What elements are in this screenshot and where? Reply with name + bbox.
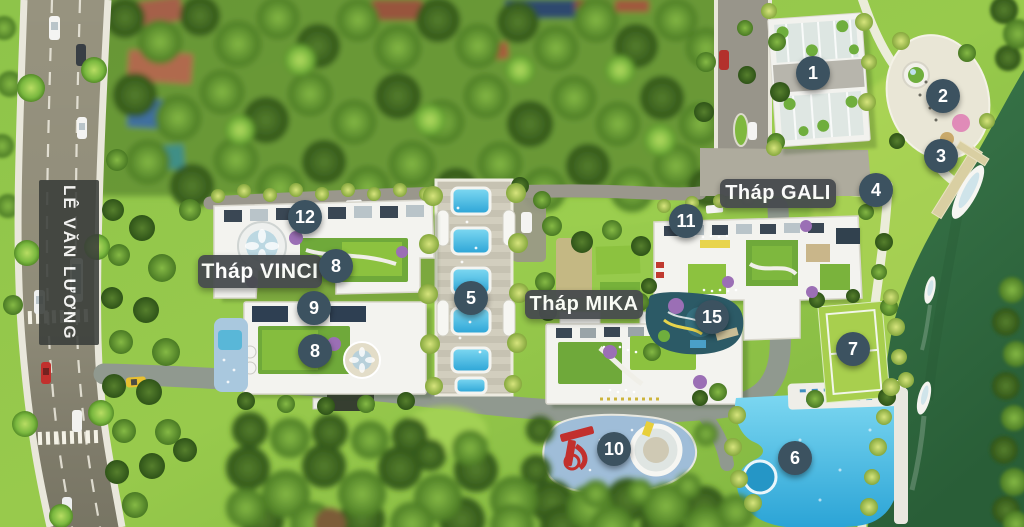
- marker-1[interactable]: 1: [796, 56, 830, 90]
- marker-2[interactable]: 2: [926, 79, 960, 113]
- marker-15[interactable]: 15: [695, 300, 729, 334]
- marker-3[interactable]: 3: [924, 139, 958, 173]
- marker-12[interactable]: 12: [288, 200, 322, 234]
- markers-layer: 123456788910111215: [0, 0, 1024, 527]
- marker-8[interactable]: 8: [298, 334, 332, 368]
- site-plan: LÊ VĂN LƯƠNG Tháp VINCI Tháp MIKA Tháp G…: [0, 0, 1024, 527]
- marker-5[interactable]: 5: [454, 281, 488, 315]
- marker-4[interactable]: 4: [859, 173, 893, 207]
- marker-9[interactable]: 9: [297, 291, 331, 325]
- marker-8[interactable]: 8: [319, 249, 353, 283]
- marker-11[interactable]: 11: [669, 204, 703, 238]
- marker-10[interactable]: 10: [597, 432, 631, 466]
- marker-6[interactable]: 6: [778, 441, 812, 475]
- marker-7[interactable]: 7: [836, 332, 870, 366]
